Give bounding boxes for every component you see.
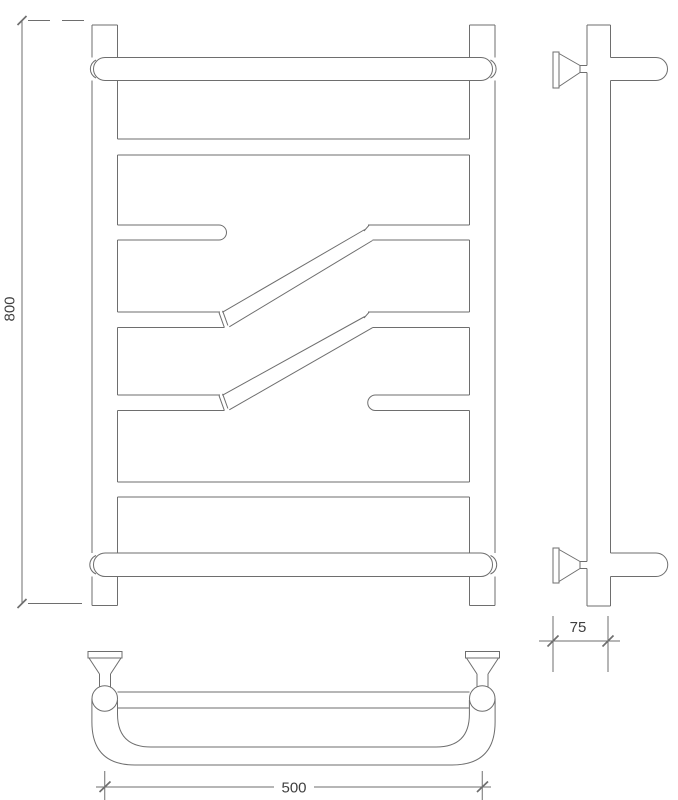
side-bottom-cone <box>559 550 580 582</box>
side-bottom-flange <box>553 548 559 583</box>
front-left-tube <box>92 25 118 606</box>
front-top-bar <box>90 58 496 81</box>
side-bottom-stem <box>580 562 587 569</box>
plan-left-bracket <box>88 652 122 712</box>
dimension-depth-label: 75 <box>570 619 587 636</box>
plan-right-cone <box>467 658 499 674</box>
front-right-tube <box>470 25 496 606</box>
plan-right-tube-section <box>470 686 496 712</box>
side-tube <box>587 25 611 606</box>
plan-right-flange <box>466 652 500 659</box>
front-level-4 <box>118 312 470 328</box>
dimension-height: 800 <box>2 16 91 608</box>
front-zigzag2-right-segment <box>368 312 470 328</box>
front-zigzag2-diagonal <box>219 312 373 410</box>
front-rung-2 <box>118 139 470 155</box>
drawing-root: 800 75 500 <box>2 16 668 800</box>
towel-rail-drawing: 800 75 500 <box>0 0 678 800</box>
front-zigzag1-diagonal <box>219 225 373 327</box>
plan-left-stem <box>100 674 111 687</box>
side-view <box>553 25 668 606</box>
side-top-stem <box>580 66 587 73</box>
side-top-wall-bracket <box>553 52 587 88</box>
dimension-width: 500 <box>96 771 491 800</box>
dimension-depth: 75 <box>539 616 620 672</box>
side-top-flange <box>553 52 559 88</box>
technical-drawing-page: 800 75 500 <box>0 0 678 800</box>
front-bottom-bar-right-bend-arc <box>491 556 497 575</box>
front-view <box>90 25 497 606</box>
front-zigzag1-left-segment <box>118 312 225 328</box>
front-level-5 <box>118 395 470 411</box>
side-bottom-bar <box>611 553 668 577</box>
side-top-cone <box>559 54 580 87</box>
plan-left-tube-section <box>92 686 118 712</box>
plan-left-cone <box>89 658 121 674</box>
front-rung-6 <box>118 482 470 497</box>
plan-left-flange <box>88 652 122 659</box>
front-zigzag2-left-segment <box>118 395 225 411</box>
front-top-bar-right-bend-arc <box>491 60 497 78</box>
plan-rung-band <box>118 692 470 708</box>
plan-view <box>88 652 500 766</box>
front-right-stub <box>368 395 470 411</box>
plan-right-stem <box>477 674 488 687</box>
dimension-height-label: 800 <box>2 296 19 321</box>
side-top-bar <box>611 58 668 81</box>
side-bottom-wall-bracket <box>553 548 587 583</box>
plan-right-bracket <box>466 652 500 712</box>
front-zigzag1-right-segment <box>368 225 470 240</box>
front-left-stub <box>118 225 227 240</box>
front-level-3 <box>118 225 470 240</box>
dimension-width-label: 500 <box>281 780 306 797</box>
front-bottom-bar <box>90 553 497 577</box>
